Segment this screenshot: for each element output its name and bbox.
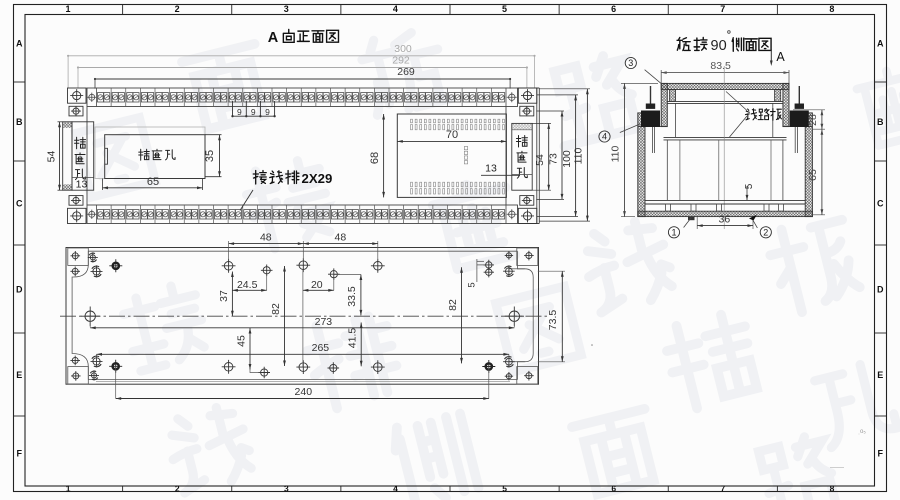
svg-text:F: F: [878, 448, 884, 458]
svg-text:65: 65: [147, 176, 159, 188]
svg-text:54: 54: [534, 154, 546, 166]
svg-text:7: 7: [720, 4, 725, 14]
svg-text:ˌo₅: ˌo₅: [858, 429, 866, 435]
svg-text:36: 36: [719, 213, 731, 225]
svg-text:5: 5: [466, 282, 477, 287]
svg-text:2: 2: [175, 483, 180, 493]
svg-text:37: 37: [218, 290, 230, 302]
svg-text:48: 48: [335, 231, 347, 243]
svg-text:2: 2: [175, 4, 180, 14]
svg-text:1: 1: [66, 4, 71, 14]
svg-text:E: E: [877, 370, 883, 380]
svg-text:45: 45: [236, 335, 248, 347]
svg-text:2X29: 2X29: [302, 171, 333, 186]
svg-text:110: 110: [609, 145, 621, 162]
svg-text:5: 5: [502, 4, 507, 14]
svg-text:33.5: 33.5: [346, 286, 358, 307]
svg-text:48: 48: [260, 231, 272, 243]
svg-text:73: 73: [547, 153, 559, 165]
svg-text:265: 265: [312, 342, 330, 354]
svg-text:73.5: 73.5: [547, 310, 559, 331]
svg-text:3: 3: [284, 4, 289, 14]
svg-text:100: 100: [561, 150, 573, 168]
svg-text:B: B: [877, 117, 884, 127]
svg-text:8: 8: [829, 4, 834, 14]
svg-text:4: 4: [393, 4, 398, 14]
svg-text:35: 35: [204, 150, 216, 162]
svg-text:65: 65: [807, 169, 819, 181]
svg-text:A: A: [877, 38, 884, 48]
svg-text:13: 13: [76, 178, 88, 190]
svg-text:B: B: [16, 117, 23, 127]
svg-text:1: 1: [671, 228, 676, 238]
svg-text:20: 20: [311, 279, 323, 291]
svg-text:68: 68: [369, 152, 381, 164]
svg-text:41.5: 41.5: [347, 328, 359, 349]
svg-text:7: 7: [720, 483, 725, 493]
svg-text:24.5: 24.5: [237, 279, 258, 291]
svg-text:28: 28: [807, 114, 819, 126]
svg-text:3: 3: [284, 483, 289, 493]
svg-text:5: 5: [502, 483, 507, 493]
svg-text:9: 9: [237, 107, 242, 117]
svg-text:E: E: [16, 370, 22, 380]
svg-text:D: D: [877, 284, 884, 294]
svg-text:C: C: [877, 198, 884, 208]
svg-text:1: 1: [66, 483, 71, 493]
svg-text:2: 2: [763, 228, 768, 238]
svg-text:273: 273: [315, 316, 333, 328]
svg-text:4: 4: [393, 483, 398, 493]
svg-text:90: 90: [711, 38, 727, 54]
svg-text:A: A: [16, 38, 23, 48]
svg-text:292: 292: [392, 55, 410, 67]
svg-text:13: 13: [485, 162, 497, 174]
svg-text:82: 82: [270, 303, 282, 315]
svg-text:D: D: [16, 284, 23, 294]
svg-text:9: 9: [265, 107, 270, 117]
svg-text:A: A: [776, 50, 785, 64]
svg-text:4: 4: [602, 132, 607, 142]
svg-text:269: 269: [397, 66, 415, 78]
svg-text:5: 5: [744, 183, 755, 189]
svg-text:6: 6: [611, 483, 616, 493]
svg-text:300: 300: [394, 43, 412, 55]
svg-text:54: 54: [46, 151, 58, 163]
svg-text:9: 9: [251, 107, 256, 117]
svg-text:8: 8: [830, 483, 835, 493]
svg-text:F: F: [16, 448, 22, 458]
svg-text:70: 70: [446, 129, 458, 141]
svg-text:A: A: [268, 30, 279, 46]
svg-text:83.5: 83.5: [710, 60, 731, 72]
svg-text:82: 82: [447, 299, 459, 311]
svg-text:110: 110: [573, 147, 585, 164]
svg-text:6: 6: [611, 4, 616, 14]
svg-text:3: 3: [628, 58, 633, 68]
svg-text:C: C: [16, 198, 23, 208]
svg-text:240: 240: [295, 386, 313, 398]
